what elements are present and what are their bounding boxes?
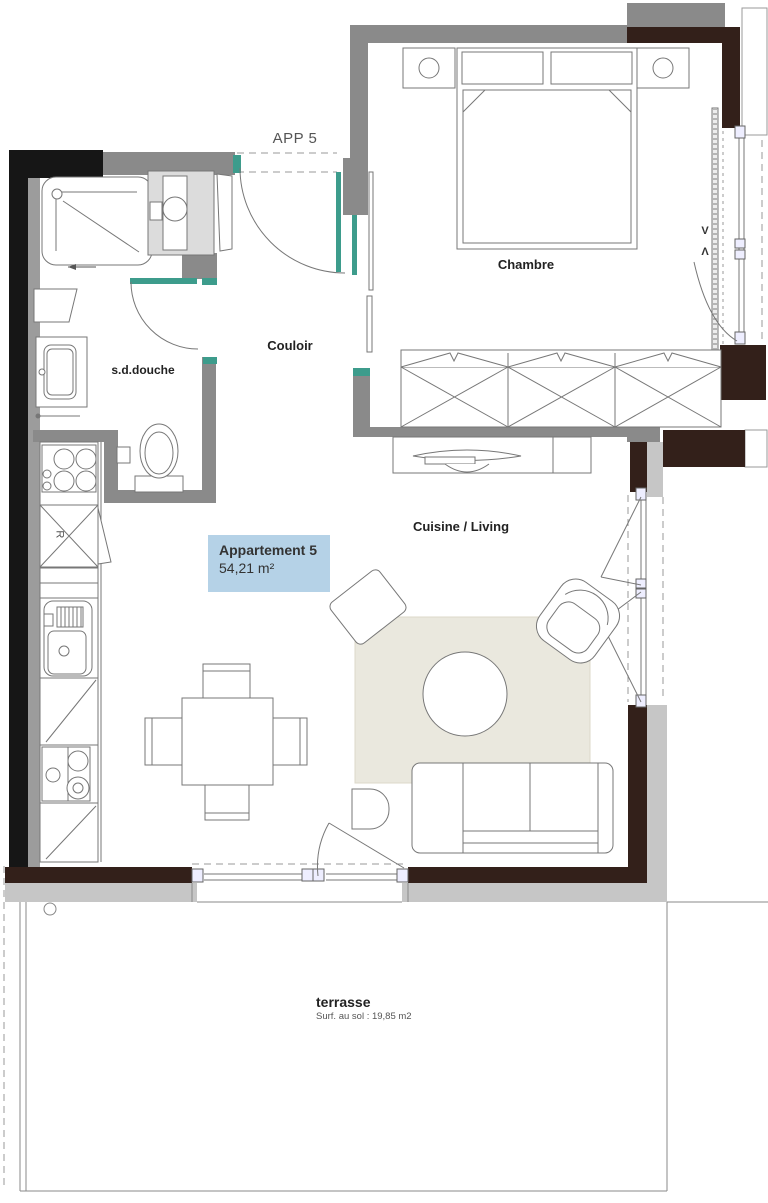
terrace-door-glazing — [204, 874, 397, 880]
wall-bathroom-east — [202, 357, 216, 498]
terrace-drain — [44, 903, 56, 915]
apartment-area: 54,21 m² — [219, 560, 330, 576]
sofa — [412, 763, 613, 853]
entry-door-swing — [240, 168, 345, 273]
room-label-bathroom: s.d.douche — [101, 364, 185, 378]
chair — [205, 785, 249, 820]
pillow — [551, 52, 632, 84]
terrace-area-note: Surf. au sol : 19,85 m2 — [316, 1012, 412, 1023]
chair — [273, 718, 307, 765]
neighbor-wall-outline — [742, 8, 767, 135]
room-label-kitchen-living: Cuisine / Living — [389, 520, 533, 535]
dining-set — [145, 664, 307, 820]
sliding-door-leaf — [336, 172, 341, 272]
wall-bedroom-top — [350, 25, 627, 43]
entry-door-leaf — [217, 174, 232, 251]
bedroom-partition — [369, 172, 373, 290]
bedroom-window-glazing — [739, 131, 744, 344]
floor-plan: APP 5 Chambre Couloir s.d.douche Cuisine… — [0, 0, 768, 1203]
room-label-bedroom: Chambre — [478, 258, 574, 273]
wall-black-corner — [9, 150, 103, 178]
wall-bedroom-bottom — [353, 427, 630, 437]
window-mark-up: V — [698, 225, 712, 238]
living-furniture — [145, 567, 627, 853]
apartment-tag: Appartement 5 54,21 m² — [208, 535, 330, 592]
pillow — [462, 52, 543, 84]
fridge-label: R — [53, 530, 66, 538]
apartment-entry-label: APP 5 — [255, 130, 335, 147]
chair — [145, 718, 182, 765]
terrace-boundary — [20, 883, 768, 1191]
bathroom-shelf — [34, 289, 77, 322]
kitchen-counter — [40, 442, 111, 862]
bathroom-door-threshold — [130, 278, 197, 284]
pouf — [352, 789, 389, 829]
terrace-label: terrasse — [316, 994, 371, 1010]
bathroom-door-swing — [131, 282, 198, 349]
chair — [203, 664, 250, 698]
coffee-table — [423, 652, 507, 736]
window-mark-down: Λ — [698, 246, 712, 259]
room-label-hallway: Couloir — [248, 339, 332, 354]
bedroom-door-leaf — [367, 296, 372, 352]
apartment-name: Appartement 5 — [219, 542, 330, 558]
dining-table — [182, 698, 273, 785]
wall-black-left — [9, 178, 28, 868]
terrace-door-swing — [317, 823, 404, 876]
neighbor-wall-outline — [745, 430, 767, 467]
